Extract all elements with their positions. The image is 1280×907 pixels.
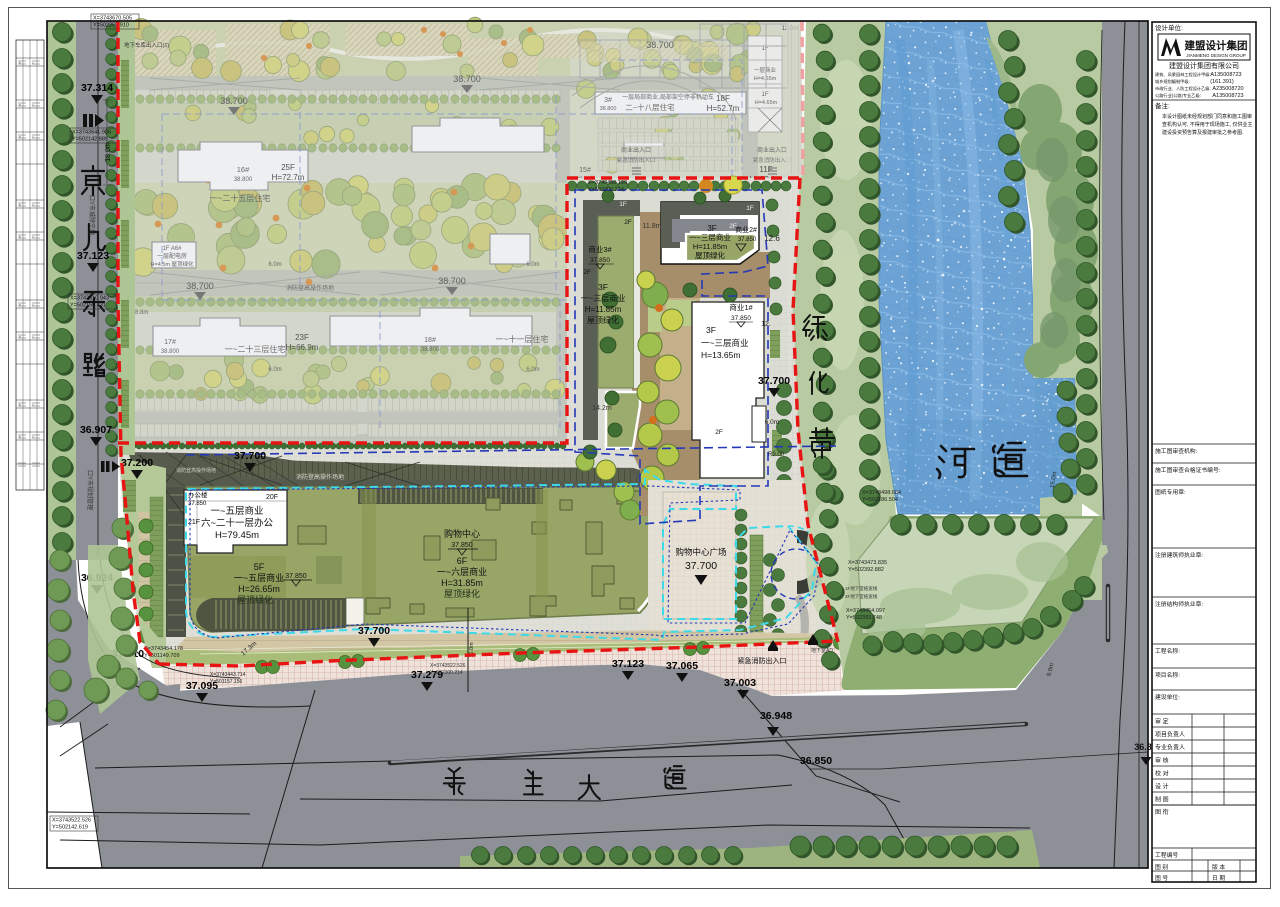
svg-text:办公楼: 办公楼: [188, 490, 208, 499]
svg-text:购物中心: 购物中心: [444, 528, 480, 539]
svg-text:37.200: 37.200: [121, 457, 153, 469]
svg-text:Y=502150.431: Y=502150.431: [70, 303, 106, 309]
svg-text:A135008723: A135008723: [1212, 93, 1243, 99]
svg-text:Y=502255.910: Y=502255.910: [93, 23, 129, 29]
svg-text:制 图: 制 图: [1155, 796, 1169, 804]
svg-text:2F地下室拓宽线: 2F地下室拓宽线: [845, 593, 878, 600]
svg-text:商业3#: 商业3#: [588, 244, 612, 254]
svg-text:地下室AD: 地下室AD: [811, 647, 833, 654]
svg-text:▪: ▪: [32, 403, 33, 407]
svg-text:图 号: 图 号: [1155, 874, 1168, 882]
svg-text:Y=502392.882: Y=502392.882: [848, 567, 884, 573]
svg-text:1F: 1F: [619, 201, 627, 208]
svg-text:37.700: 37.700: [685, 560, 717, 572]
svg-text:2F: 2F: [729, 223, 737, 230]
svg-text:37.850: 37.850: [285, 573, 307, 580]
svg-text:建盟设计集团有限公司: 建盟设计集团有限公司: [1169, 61, 1239, 70]
svg-text:专业负责人: 专业负责人: [1155, 744, 1185, 752]
svg-text:▪: ▪: [32, 335, 33, 339]
svg-text:X=3743443.714: X=3743443.714: [210, 672, 246, 678]
svg-text:屋顶绿化: 屋顶绿化: [695, 250, 725, 260]
svg-text:37.700: 37.700: [758, 375, 790, 387]
svg-text:商业2#: 商业2#: [735, 225, 757, 234]
svg-text:设计单位:: 设计单位:: [1155, 23, 1183, 32]
svg-text:X=3743522.526: X=3743522.526: [430, 663, 466, 669]
svg-text:屋顶绿化: 屋顶绿化: [444, 588, 480, 599]
svg-text:5F: 5F: [254, 562, 265, 572]
svg-text:屋顶绿化: 屋顶绿化: [587, 315, 619, 325]
svg-text:日 期: 日 期: [1212, 875, 1225, 882]
svg-text:3F: 3F: [707, 224, 716, 233]
svg-text:地下车库出入口(1): 地下车库出入口(1): [124, 41, 169, 49]
svg-text:H=13.65m: H=13.65m: [701, 350, 740, 360]
svg-text:X=3743473.835: X=3743473.835: [848, 560, 887, 566]
svg-text:37.850: 37.850: [188, 501, 207, 507]
svg-text:审 核: 审 核: [1155, 757, 1169, 765]
svg-text:37.850: 37.850: [451, 542, 473, 549]
svg-text:2F: 2F: [583, 269, 591, 276]
svg-text:城乡规划编制甲级:: 城乡规划编制甲级:: [1155, 78, 1190, 85]
svg-text:建盟设计集团: 建盟设计集团: [1184, 39, 1248, 52]
svg-text:项目负责人: 项目负责人: [1155, 731, 1185, 739]
svg-text:JIANMENG DESIGN GROUP: JIANMENG DESIGN GROUP: [1186, 53, 1246, 58]
svg-text:6F: 6F: [457, 556, 468, 566]
svg-text:购物中心广场: 购物中心广场: [675, 547, 726, 557]
svg-text:Y=502142.889: Y=502142.889: [72, 137, 108, 143]
svg-text:X=3743522.526: X=3743522.526: [52, 818, 91, 824]
svg-text:本设计图纸未经规划部门同意和施工图审: 本设计图纸未经规划部门同意和施工图审: [1162, 113, 1252, 120]
svg-text:项目名称:: 项目名称:: [1155, 671, 1180, 679]
svg-text:建设投资预告算及报建审批之参考图.: 建设投资预告算及报建审批之参考图.: [1162, 129, 1243, 136]
svg-text:H=31.85m: H=31.85m: [441, 578, 483, 588]
svg-text:H=11.85m: H=11.85m: [693, 242, 727, 251]
svg-text:一~六层商业: 一~六层商业: [437, 566, 487, 577]
svg-text:口Y市城除空地: 口Y市城除空地: [88, 195, 96, 235]
svg-text:X=3743450.199: X=3743450.199: [588, 180, 627, 186]
svg-text:市政行业、人防工程设计乙级:: 市政行业、人防工程设计乙级:: [1155, 85, 1211, 92]
svg-text:36.850: 36.850: [800, 755, 832, 767]
svg-text:X=3743641.936: X=3743641.936: [72, 130, 111, 136]
svg-text:▪: ▪: [32, 103, 33, 107]
svg-text:37.065: 37.065: [666, 660, 698, 672]
svg-text:6.0m: 6.0m: [765, 419, 779, 426]
svg-text:X=3743610.943: X=3743610.943: [70, 296, 109, 302]
svg-text:校 对: 校 对: [1155, 770, 1169, 778]
svg-text:注册建筑师执业章:: 注册建筑师执业章:: [1155, 551, 1203, 559]
svg-text:37.003: 37.003: [724, 677, 756, 689]
svg-text:Y=502393.748: Y=502393.748: [846, 615, 882, 621]
svg-text:H=11.85m: H=11.85m: [585, 305, 622, 314]
svg-text:X=3743498.684: X=3743498.684: [862, 490, 901, 496]
svg-text:A235008720: A235008720: [1212, 86, 1243, 92]
svg-text:查机构认可, 不得用于现场施工, 仅供业主: 查机构认可, 不得用于现场施工, 仅供业主: [1162, 121, 1253, 128]
svg-text:1F: 1F: [746, 205, 754, 212]
svg-text:Y=502142.619: Y=502142.619: [52, 825, 88, 831]
svg-text:36.907: 36.907: [80, 424, 112, 436]
svg-text:37.850: 37.850: [731, 315, 751, 322]
svg-text:屋顶绿化: 屋顶绿化: [237, 594, 273, 605]
svg-text:Y=502300.214: Y=502300.214: [588, 187, 624, 193]
svg-text:备注:: 备注:: [1155, 101, 1170, 110]
svg-text:37.123: 37.123: [612, 658, 644, 670]
svg-text:▪: ▪: [32, 61, 33, 65]
svg-text:图 别: 图 别: [1155, 863, 1168, 871]
svg-text:3F: 3F: [706, 325, 716, 335]
svg-text:14.2m: 14.2m: [592, 405, 612, 412]
svg-text:12.: 12.: [761, 321, 771, 328]
svg-text:36.8: 36.8: [1134, 742, 1152, 752]
svg-text:37.123: 37.123: [77, 250, 109, 262]
svg-text:36.948: 36.948: [760, 710, 792, 722]
svg-text:37.850: 37.850: [590, 257, 610, 264]
svg-text:一~三层商业: 一~三层商业: [581, 293, 626, 303]
svg-text:施工图审查合格证书编号:: 施工图审查合格证书编号:: [1155, 466, 1221, 474]
svg-text:Y=501157.156: Y=501157.156: [210, 679, 243, 685]
svg-text:商业1#: 商业1#: [729, 302, 753, 312]
svg-text:消防登高操作场地: 消防登高操作场地: [176, 467, 216, 474]
svg-text:3F: 3F: [598, 282, 608, 292]
svg-text:一~五层商业: 一~五层商业: [234, 572, 284, 583]
svg-text:Y=502300.214: Y=502300.214: [430, 670, 463, 676]
svg-text:建筑、风景园林工程设计甲级:: 建筑、风景园林工程设计甲级:: [1155, 71, 1211, 78]
svg-text:注册结构师执业章:: 注册结构师执业章:: [1155, 600, 1203, 608]
svg-text:R9.00: R9.00: [768, 452, 785, 458]
svg-text:A135008723: A135008723: [1210, 72, 1241, 78]
svg-text:设 计: 设 计: [1155, 783, 1169, 791]
svg-text:18.0m: 18.0m: [105, 142, 112, 162]
svg-text:2F: 2F: [624, 219, 632, 226]
svg-text:37.850: 37.850: [738, 237, 757, 243]
svg-text:H=26.65m: H=26.65m: [238, 584, 280, 594]
svg-text:▪: ▪: [32, 435, 33, 439]
svg-text:▪: ▪: [32, 203, 33, 207]
svg-text:一~三层商业: 一~三层商业: [689, 232, 731, 242]
svg-text:一~五层商业: 一~五层商业: [210, 505, 263, 517]
svg-text:审 定: 审 定: [1155, 718, 1169, 726]
svg-text:一~三层商业: 一~三层商业: [701, 338, 748, 348]
svg-text:▪: ▪: [32, 303, 33, 307]
svg-text:Y=502186.504: Y=502186.504: [862, 497, 898, 503]
svg-text:2F: 2F: [715, 429, 723, 436]
svg-text:工程名称:: 工程名称:: [1155, 647, 1180, 655]
svg-text:消防登高操作场地: 消防登高操作场地: [296, 473, 344, 481]
svg-text:建设单位:: 建设单位:: [1155, 693, 1180, 701]
svg-text:工程编号: 工程编号: [1155, 851, 1178, 859]
svg-text:37.700: 37.700: [234, 450, 266, 462]
svg-text:H=79.45m: H=79.45m: [215, 530, 259, 541]
svg-text:11.8m: 11.8m: [643, 223, 662, 230]
svg-text:37.700: 37.700: [358, 625, 390, 637]
svg-text:图纸专用章:: 图纸专用章:: [1155, 488, 1186, 496]
svg-text:X=3743454.097: X=3743454.097: [846, 608, 885, 614]
svg-text:公路行业(公路)专业乙级:: 公路行业(公路)专业乙级:: [1155, 92, 1201, 99]
svg-text:20F: 20F: [266, 494, 278, 501]
svg-text:施工图审查机构:: 施工图审查机构:: [1155, 447, 1198, 455]
svg-text:▪: ▪: [32, 135, 33, 139]
svg-text:口Y市规划管理: 口Y市规划管理: [86, 470, 94, 510]
svg-text:▪: ▪: [32, 235, 33, 239]
svg-text:1F地下室拓宽线: 1F地下室拓宽线: [845, 585, 878, 592]
svg-text:版 本: 版 本: [1212, 863, 1225, 871]
svg-text:紧急消防出入口: 紧急消防出入口: [738, 656, 787, 665]
svg-text:37.314: 37.314: [81, 82, 113, 94]
svg-text:图 衔: 图 衔: [1155, 808, 1169, 816]
svg-text:(161.391): (161.391): [1210, 79, 1234, 85]
svg-text:六~二十一层办公: 六~二十一层办公: [201, 517, 274, 529]
